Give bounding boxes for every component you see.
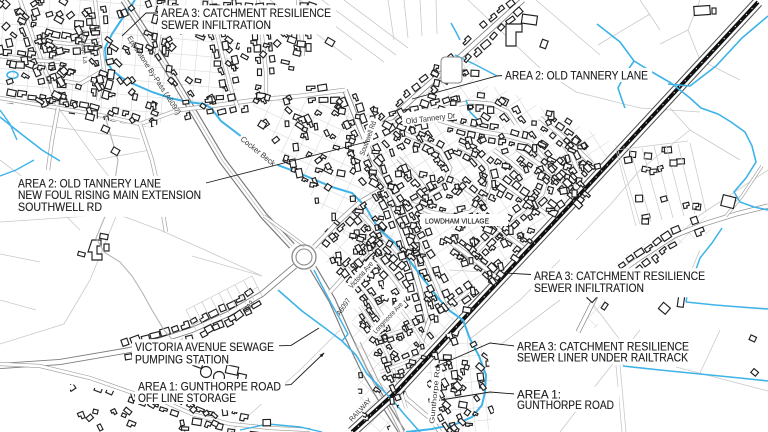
svg-text:SEWER LINER UNDER RAILTRACK: SEWER LINER UNDER RAILTRACK	[517, 350, 688, 364]
svg-text:AREA 2: OLD TANNERY LANE: AREA 2: OLD TANNERY LANE	[505, 69, 648, 83]
svg-text:PUMPING STATION: PUMPING STATION	[135, 353, 229, 367]
svg-text:SOUTHWELL RD: SOUTHWELL RD	[18, 200, 102, 214]
svg-text:GUNTHORPE ROAD: GUNTHORPE ROAD	[517, 398, 614, 412]
svg-text:SEWER INFILTRATION: SEWER INFILTRATION	[161, 18, 271, 32]
svg-text:LOWDHAM VILLAGE: LOWDHAM VILLAGE	[425, 217, 489, 226]
svg-text:OFF LINE STORAGE: OFF LINE STORAGE	[138, 391, 236, 405]
svg-text:SEWER INFILTRATION: SEWER INFILTRATION	[534, 281, 644, 295]
